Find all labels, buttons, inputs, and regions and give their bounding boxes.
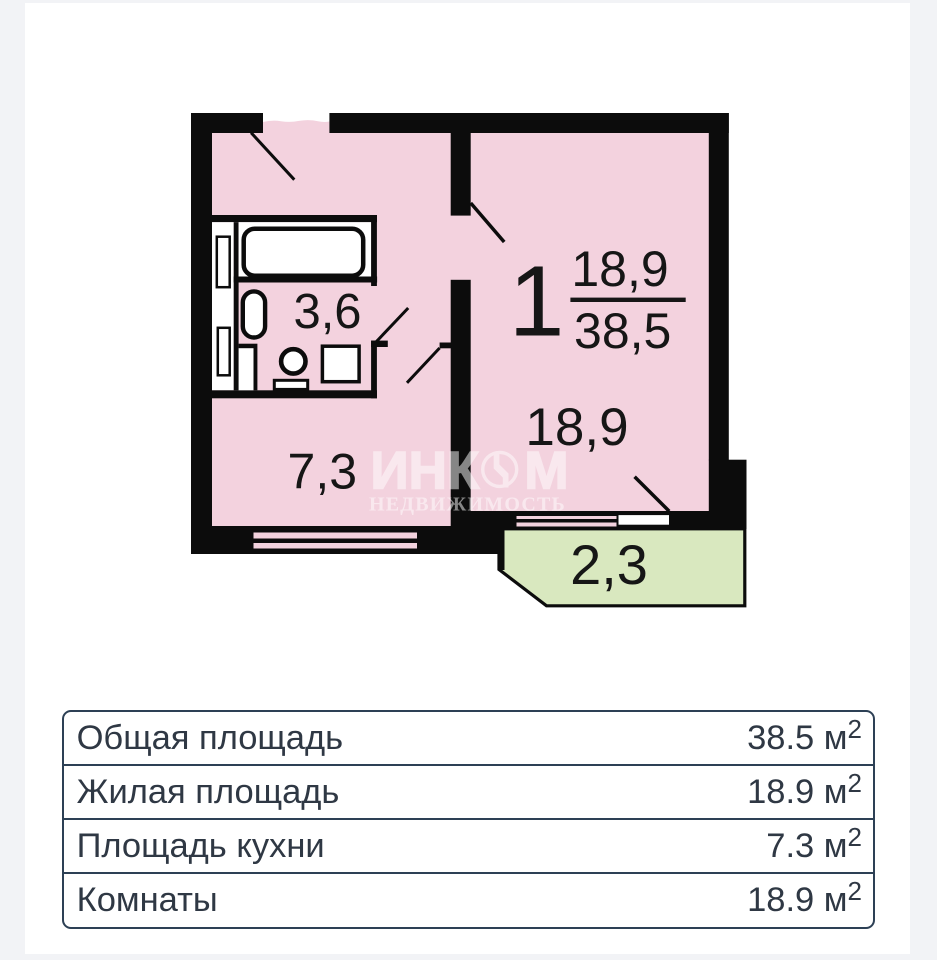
svg-text:2,3: 2,3 — [570, 533, 648, 596]
svg-text:7,3: 7,3 — [288, 443, 358, 499]
svg-text:ИНК: ИНК — [371, 441, 480, 500]
svg-text:М: М — [524, 441, 568, 500]
svg-text:3,6: 3,6 — [293, 285, 361, 339]
svg-text:38,5: 38,5 — [574, 303, 671, 359]
svg-text:18,9: 18,9 — [571, 241, 668, 297]
svg-text:1: 1 — [509, 246, 565, 358]
svg-text:НЕДВИЖИМОСТЬ: НЕДВИЖИМОСТЬ — [369, 494, 566, 516]
